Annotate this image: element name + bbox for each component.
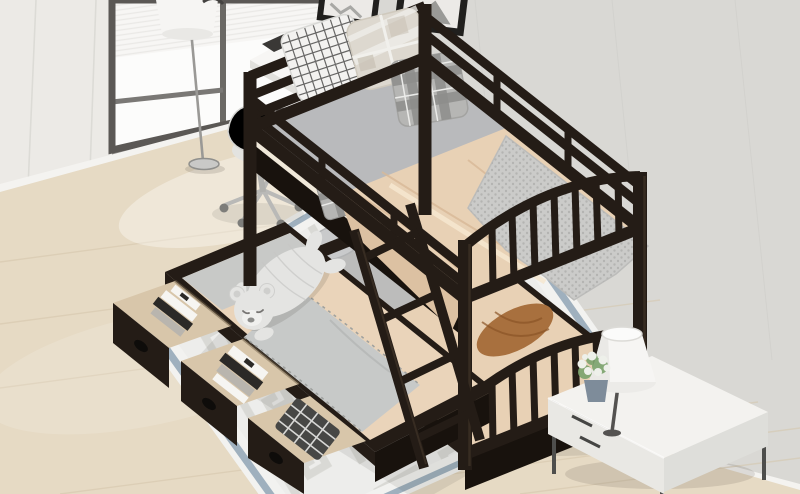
bear-nose	[248, 318, 255, 323]
scene-canvas	[0, 0, 800, 494]
lamp-base	[189, 159, 219, 170]
table-lamp-foot	[603, 430, 621, 437]
plant-pot	[584, 380, 608, 402]
room-photo	[0, 0, 800, 494]
